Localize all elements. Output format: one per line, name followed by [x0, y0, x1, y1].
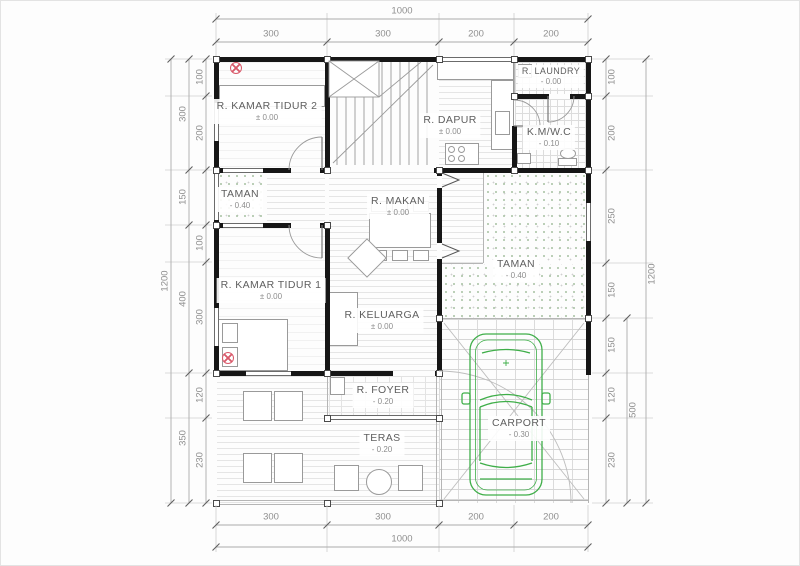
window-icon: [439, 57, 512, 62]
edge-line: [327, 375, 328, 418]
column-marker: [511, 167, 518, 174]
basin: [517, 153, 531, 164]
sink: [495, 111, 510, 135]
room-label-taman-left: TAMAN- 0.40: [217, 187, 263, 212]
edge-line: [514, 59, 515, 96]
burner: [448, 155, 455, 162]
chair: [413, 250, 429, 261]
room-level: - 0.20: [357, 397, 410, 407]
wall-segment: [263, 168, 291, 173]
window-icon: [223, 168, 263, 173]
room-level: ± 0.00: [371, 208, 425, 218]
column-marker: [436, 415, 443, 422]
burner: [458, 155, 465, 162]
dim-right: 120: [607, 387, 618, 403]
room-level: - 0.40: [221, 201, 259, 211]
dim-left: 150: [178, 189, 189, 205]
column-marker: [585, 93, 592, 100]
edge-line: [588, 375, 589, 503]
window-icon: [214, 308, 219, 346]
chair: [392, 250, 408, 261]
column-marker: [324, 500, 331, 507]
column-marker: [324, 167, 331, 174]
dim-left: 230: [195, 452, 206, 468]
room-name: R. LAUNDRY: [522, 66, 580, 77]
room-label-makan: R. MAKAN± 0.00: [367, 194, 429, 219]
column-marker: [213, 500, 220, 507]
window-icon: [586, 203, 591, 241]
room-label-carport: CARPORT- 0.30: [488, 416, 550, 441]
carport-floor: [439, 319, 588, 503]
column-marker: [213, 222, 220, 229]
dim-top: 300: [263, 29, 279, 40]
room-label-teras: TERAS- 0.20: [359, 431, 404, 456]
bench: [243, 391, 272, 421]
room-name: R. DAPUR: [423, 114, 476, 127]
edge-line: [483, 170, 484, 263]
room-label-foyer: R. FOYER- 0.20: [353, 383, 414, 408]
room-label-keluarga: R. KELUARGA± 0.00: [340, 308, 423, 333]
stairs-icon: [329, 61, 433, 165]
dim-left: 350: [178, 430, 189, 446]
dim-right: 250: [607, 208, 618, 224]
dim-right: 150: [607, 337, 618, 353]
wall-segment: [586, 57, 591, 203]
wall-segment: [325, 223, 330, 374]
edge-line: [441, 375, 442, 503]
column-marker: [324, 415, 331, 422]
wall-segment: [512, 57, 590, 62]
room-level: ± 0.00: [217, 113, 318, 123]
room-name: TAMAN: [221, 188, 259, 201]
floor-plan: R. KAMAR TIDUR 2± 0.00 R. DAPUR± 0.00 R.…: [0, 0, 800, 566]
dim-total-top: 1000: [391, 6, 412, 17]
room-label-kamar-tidur-1: R. KAMAR TIDUR 1± 0.00: [217, 278, 326, 303]
burner: [448, 146, 455, 153]
room-label-laundry: R. LAUNDRY- 0.00: [518, 65, 584, 88]
wall-segment: [325, 59, 330, 171]
dim-bottom: 200: [543, 512, 559, 523]
wall-segment: [437, 188, 442, 243]
dim-right: 230: [607, 452, 618, 468]
column-marker: [213, 370, 220, 377]
edge-line: [439, 263, 483, 264]
dim-left: 300: [178, 106, 189, 122]
dim-bottom: 300: [263, 512, 279, 523]
room-label-dapur: R. DAPUR± 0.00: [419, 113, 480, 138]
dim-right: 200: [607, 125, 618, 141]
column-marker: [436, 370, 443, 377]
room-level: ± 0.00: [344, 322, 419, 332]
shoe-cabinet: [330, 377, 345, 395]
column-marker: [436, 500, 443, 507]
dim-total-left: 1200: [160, 270, 171, 291]
column-marker: [324, 370, 331, 377]
walkway-floor: [442, 172, 483, 263]
lamp-icon: [222, 352, 234, 364]
room-label-kmwc: K.M/W.C- 0.10: [523, 125, 575, 150]
wall-segment: [325, 371, 393, 376]
edge-line: [436, 375, 437, 503]
wall-segment: [214, 59, 219, 103]
room-name: K.M/W.C: [527, 126, 571, 139]
dim-bottom: 200: [468, 512, 484, 523]
room-name: R. KAMAR TIDUR 1: [221, 279, 322, 292]
dim-total-right: 1200: [647, 263, 658, 284]
terrace-table: [366, 469, 392, 495]
room-level: - 0.20: [363, 445, 400, 455]
room-level: ± 0.00: [423, 127, 476, 137]
room-level: ± 0.00: [221, 292, 322, 302]
bench: [274, 391, 303, 421]
window-icon: [246, 371, 291, 376]
column-marker: [213, 56, 220, 63]
column-marker: [213, 167, 220, 174]
room-level: - 0.10: [527, 139, 571, 149]
room-level: - 0.00: [522, 77, 580, 87]
bench: [274, 453, 303, 483]
bench: [243, 453, 272, 483]
room-name: R. KELUARGA: [344, 309, 419, 322]
dim-total-bottom: 1000: [391, 534, 412, 545]
window-icon: [327, 415, 439, 420]
wall-segment: [512, 126, 517, 171]
room-name: TAMAN: [497, 258, 535, 271]
wall-segment: [586, 241, 591, 375]
room-name: R. FOYER: [357, 384, 410, 397]
edge-line: [439, 318, 588, 319]
dim-top: 300: [375, 29, 391, 40]
chair: [334, 465, 359, 491]
dim-left: 120: [195, 387, 206, 403]
pillow: [222, 323, 238, 343]
column-marker: [436, 315, 443, 322]
window-icon: [223, 223, 263, 228]
column-marker: [585, 315, 592, 322]
hall-floor: [267, 172, 325, 223]
dim-top: 200: [543, 29, 559, 40]
taman-right-floor: [484, 172, 586, 263]
dim-left: 400: [178, 291, 189, 307]
column-marker: [585, 167, 592, 174]
column-marker: [511, 93, 518, 100]
dim-left: 100: [195, 235, 206, 251]
kitchen-counter: [437, 60, 514, 80]
column-marker: [585, 56, 592, 63]
column-marker: [436, 56, 443, 63]
burner: [458, 146, 465, 153]
dim-left: 300: [195, 309, 206, 325]
lamp-icon: [230, 62, 242, 74]
room-name: R. MAKAN: [371, 195, 425, 208]
dim-bottom: 300: [375, 512, 391, 523]
column-marker: [511, 56, 518, 63]
room-name: CARPORT: [492, 417, 546, 430]
dim-top: 200: [468, 29, 484, 40]
room-label-kamar-tidur-2: R. KAMAR TIDUR 2± 0.00: [213, 99, 322, 124]
column-marker: [324, 56, 331, 63]
dim-left: 200: [195, 125, 206, 141]
chair: [398, 465, 423, 491]
room-level: - 0.40: [497, 271, 535, 281]
column-marker: [436, 167, 443, 174]
room-name: TERAS: [363, 432, 400, 445]
wall-segment: [263, 223, 291, 228]
toilet-tank: [558, 158, 577, 166]
room-level: - 0.30: [492, 430, 546, 440]
dim-right: 150: [607, 282, 618, 298]
edge-line: [216, 500, 588, 501]
dim-right: 500: [628, 402, 639, 418]
dim-right: 100: [607, 69, 618, 85]
room-label-taman-right: TAMAN- 0.40: [493, 257, 539, 282]
room-name: R. KAMAR TIDUR 2: [217, 100, 318, 113]
dim-left: 100: [195, 69, 206, 85]
column-marker: [324, 222, 331, 229]
